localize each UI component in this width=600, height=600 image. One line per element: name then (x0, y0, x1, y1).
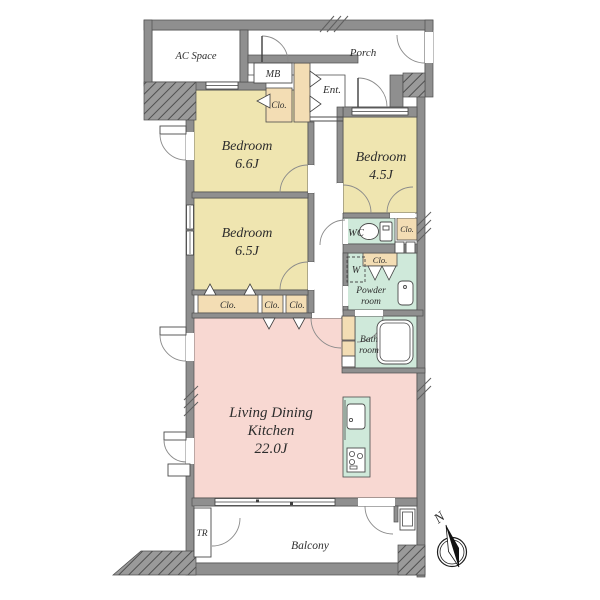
storage-by-bath-1 (342, 316, 355, 340)
ldk-size: 22.0J (255, 441, 289, 457)
shoe-cabinet (294, 63, 310, 122)
bedroom-66-label: Bedroom (222, 139, 273, 154)
closet-small-1-label: Clo. (264, 300, 279, 310)
bath-room-label-2: room (359, 346, 379, 356)
bedroom-45-room (343, 117, 417, 213)
meter-box-label: MB (265, 69, 280, 80)
closet-wide-label: Clo. (220, 301, 236, 311)
ldk-label-2: Kitchen (247, 423, 295, 439)
powder-room-label-1: Powder (355, 286, 386, 296)
window-balcony-sliding (215, 499, 335, 506)
wc-door-arc (320, 220, 345, 245)
storage-by-bath-3 (342, 356, 355, 367)
closet-powder-label: Clo. (373, 255, 387, 265)
powder-sink (398, 281, 413, 305)
bedroom-45-label: Bedroom (356, 150, 407, 165)
balcony-sink (400, 509, 415, 530)
stove (347, 448, 365, 472)
closet-entrance-label: Clo. (271, 100, 286, 110)
bathtub (377, 320, 413, 364)
window-bedroom-45 (352, 108, 408, 115)
bath-room-label-1: Bath (360, 335, 378, 345)
closet-wc-label: Clo. (400, 225, 414, 234)
window-ac-space (206, 82, 238, 89)
entrance-label: Ent. (322, 84, 341, 96)
ldk-label-1: Living Dining (228, 405, 313, 421)
compass-icon: N (431, 509, 467, 567)
powder-room-label-2: room (361, 297, 381, 307)
floor-plan-drawing: N AC Space Porch MB Ent. Clo. Bedroom 6.… (0, 0, 600, 600)
bedroom-45-size: 4.5J (369, 168, 394, 183)
bedroom-66-size: 6.6J (235, 157, 260, 172)
balcony-area (192, 506, 417, 563)
closet-small-2-label: Clo. (289, 300, 304, 310)
balcony-label: Balcony (291, 540, 330, 552)
compass-north-label: N (431, 509, 449, 528)
bedroom-65-size: 6.5J (235, 244, 260, 259)
trunk-room-label: TR (196, 529, 207, 539)
pipe-shaft-1 (395, 242, 404, 253)
bedroom-65-label: Bedroom (222, 226, 273, 241)
wc-label: WC (348, 228, 365, 239)
ac-space-label: AC Space (174, 51, 216, 62)
floor-plan: N AC Space Porch MB Ent. Clo. Bedroom 6.… (0, 0, 600, 600)
pipe-shaft-2 (406, 242, 415, 253)
porch-label: Porch (349, 47, 377, 59)
exterior-left-doors (160, 126, 190, 476)
